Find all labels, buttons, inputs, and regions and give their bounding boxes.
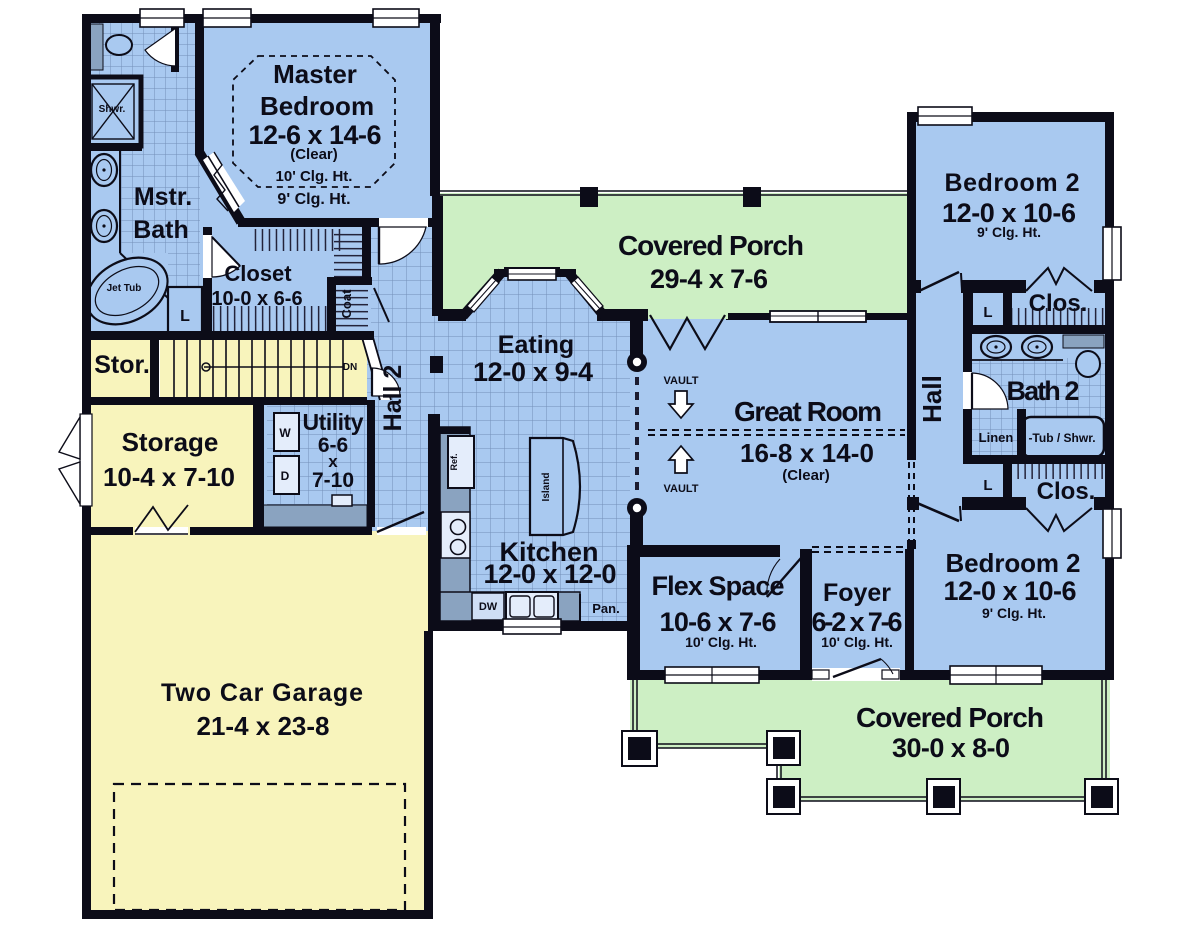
svg-text:10' Clg. Ht.: 10' Clg. Ht. [276, 168, 353, 185]
svg-text:9' Clg. Ht.: 9' Clg. Ht. [277, 191, 350, 208]
svg-text:Pan.: Pan. [592, 601, 619, 616]
svg-text:Storage: Storage [122, 427, 219, 457]
svg-text:12-0 x 12-0: 12-0 x 12-0 [484, 559, 617, 589]
svg-text:Two Car Garage: Two Car Garage [161, 679, 363, 707]
svg-text:VAULT: VAULT [663, 483, 698, 495]
svg-text:Jet Tub: Jet Tub [107, 283, 142, 294]
svg-text:Closet: Closet [224, 261, 292, 286]
svg-text:Stor.: Stor. [94, 351, 150, 379]
svg-text:30-0 x 8-0: 30-0 x 8-0 [892, 733, 1010, 763]
svg-text:Hall: Hall [917, 375, 947, 423]
svg-text:10' Clg. Ht.: 10' Clg. Ht. [821, 634, 893, 650]
svg-text:L: L [983, 477, 992, 494]
svg-text:Bath 2: Bath 2 [1007, 376, 1080, 406]
svg-text:L: L [983, 304, 992, 321]
svg-text:12-0 x 9-4: 12-0 x 9-4 [473, 357, 593, 387]
svg-text:Shwr.: Shwr. [99, 104, 126, 115]
svg-text:Island: Island [541, 473, 552, 502]
svg-text:Bedroom: Bedroom [260, 91, 374, 121]
svg-text:Flex Space: Flex Space [652, 571, 785, 601]
svg-text:Covered Porch: Covered Porch [856, 702, 1044, 733]
svg-text:Covered Porch: Covered Porch [618, 230, 804, 261]
svg-text:DW: DW [479, 601, 498, 613]
svg-text:12-0 x 10-6: 12-0 x 10-6 [944, 576, 1077, 606]
svg-text:6-2 x 7-6: 6-2 x 7-6 [812, 607, 903, 637]
svg-text:10' Clg. Ht.: 10' Clg. Ht. [685, 634, 757, 650]
svg-text:10-4 x 7-10: 10-4 x 7-10 [103, 462, 235, 492]
svg-text:Clos.: Clos. [1029, 290, 1088, 317]
svg-text:16-8 x 14-0: 16-8 x 14-0 [740, 438, 874, 468]
svg-text:L: L [180, 308, 190, 325]
svg-text:Bedroom 2: Bedroom 2 [945, 169, 1080, 197]
svg-text:Foyer: Foyer [823, 579, 891, 607]
svg-text:29-4 x 7-6: 29-4 x 7-6 [650, 264, 768, 294]
svg-text:10-0 x 6-6: 10-0 x 6-6 [211, 288, 302, 310]
svg-text:Clos.: Clos. [1037, 478, 1096, 505]
svg-text:Bath: Bath [133, 216, 189, 244]
svg-text:7-10: 7-10 [312, 469, 354, 492]
svg-text:(Clear): (Clear) [782, 467, 830, 484]
svg-text:Eating: Eating [498, 331, 574, 359]
svg-text:Linen: Linen [979, 430, 1014, 445]
svg-text:-Tub / Shwr.: -Tub / Shwr. [1028, 431, 1095, 445]
svg-text:9' Clg. Ht.: 9' Clg. Ht. [982, 605, 1046, 621]
svg-text:Master: Master [273, 59, 357, 89]
svg-text:Great Room: Great Room [734, 396, 882, 427]
svg-text:Mstr.: Mstr. [134, 183, 192, 211]
svg-text:9' Clg. Ht.: 9' Clg. Ht. [977, 224, 1041, 240]
svg-text:Coat: Coat [339, 289, 354, 319]
svg-text:Hall 2: Hall 2 [379, 365, 407, 432]
svg-text:W: W [279, 426, 291, 440]
svg-text:DN: DN [343, 362, 357, 373]
svg-text:21-4 x 23-8: 21-4 x 23-8 [197, 711, 330, 741]
svg-text:Utility: Utility [303, 409, 364, 435]
svg-text:Bedroom 2: Bedroom 2 [946, 548, 1081, 578]
svg-text:10-6 x 7-6: 10-6 x 7-6 [660, 607, 777, 637]
svg-text:Ref.: Ref. [449, 453, 459, 470]
svg-text:VAULT: VAULT [663, 375, 698, 387]
svg-text:(Clear): (Clear) [290, 146, 338, 163]
svg-text:D: D [281, 469, 290, 483]
